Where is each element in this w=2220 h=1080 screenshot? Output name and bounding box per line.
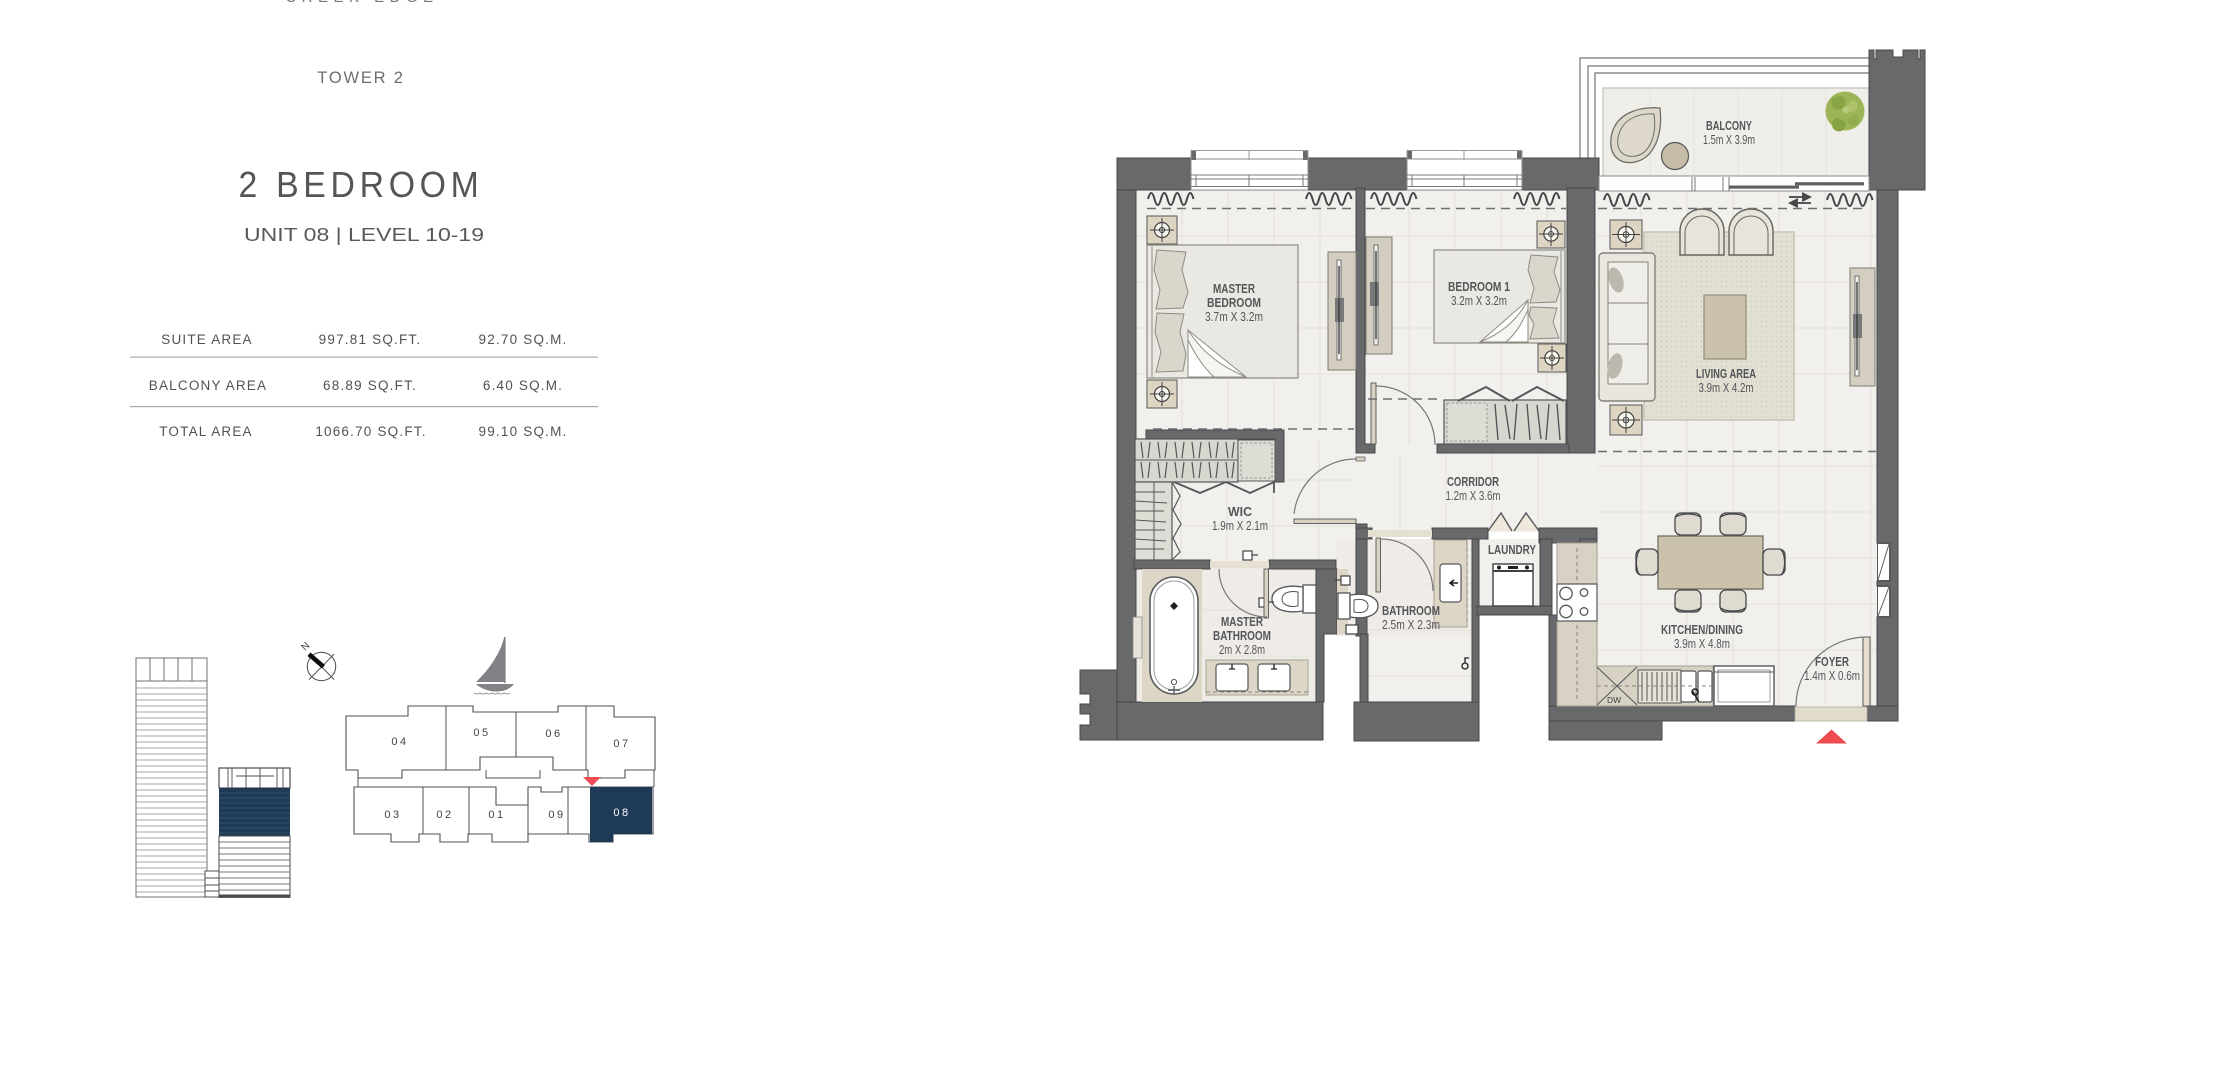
svg-text:1066.70 SQ.FT.: 1066.70 SQ.FT. bbox=[315, 424, 426, 439]
svg-text:03: 03 bbox=[384, 809, 401, 821]
svg-text:08: 08 bbox=[613, 807, 630, 819]
svg-text:SUITE AREA: SUITE AREA bbox=[161, 332, 253, 347]
svg-text:1.4m X 0.6m: 1.4m X 0.6m bbox=[1804, 669, 1860, 683]
svg-text:09: 09 bbox=[548, 809, 565, 821]
svg-text:BEDROOM 1: BEDROOM 1 bbox=[1448, 280, 1510, 294]
svg-text:06: 06 bbox=[545, 728, 562, 740]
svg-text:UNIT 08 | LEVEL 10-19: UNIT 08 | LEVEL 10-19 bbox=[244, 225, 484, 245]
svg-text:1.5m X 3.9m: 1.5m X 3.9m bbox=[1703, 133, 1755, 147]
svg-text:LIVING AREA: LIVING AREA bbox=[1696, 367, 1756, 381]
svg-text:3.2m X 3.2m: 3.2m X 3.2m bbox=[1451, 294, 1507, 308]
svg-text:2 BEDROOM: 2 BEDROOM bbox=[239, 164, 484, 205]
svg-text:2m X 2.8m: 2m X 2.8m bbox=[1219, 643, 1265, 657]
svg-text:04: 04 bbox=[391, 736, 408, 748]
svg-text:3.9m X 4.2m: 3.9m X 4.2m bbox=[1699, 381, 1754, 395]
svg-text:BATHROOM: BATHROOM bbox=[1382, 604, 1440, 618]
svg-text:LAUNDRY: LAUNDRY bbox=[1488, 543, 1537, 557]
svg-text:1.2m X 3.6m: 1.2m X 3.6m bbox=[1446, 489, 1501, 503]
svg-text:2.5m X 2.3m: 2.5m X 2.3m bbox=[1382, 618, 1440, 632]
svg-text:1.9m X 2.1m: 1.9m X 2.1m bbox=[1212, 519, 1268, 533]
svg-text:997.81 SQ.FT.: 997.81 SQ.FT. bbox=[319, 332, 422, 347]
svg-text:92.70 SQ.M.: 92.70 SQ.M. bbox=[479, 332, 568, 347]
svg-text:BEDROOM: BEDROOM bbox=[1207, 296, 1261, 310]
svg-text:01: 01 bbox=[488, 809, 505, 821]
svg-text:02: 02 bbox=[436, 809, 453, 821]
svg-text:05: 05 bbox=[473, 727, 490, 739]
svg-text:TOTAL AREA: TOTAL AREA bbox=[159, 424, 253, 439]
svg-text:TOWER 2: TOWER 2 bbox=[317, 69, 404, 87]
svg-text:99.10 SQ.M.: 99.10 SQ.M. bbox=[479, 424, 568, 439]
svg-text:BATHROOM: BATHROOM bbox=[1213, 629, 1271, 643]
svg-text:KITCHEN/DINING: KITCHEN/DINING bbox=[1661, 623, 1743, 637]
svg-text:MASTER: MASTER bbox=[1221, 615, 1263, 629]
svg-text:BALCONY AREA: BALCONY AREA bbox=[149, 378, 267, 393]
svg-text:CORRIDOR: CORRIDOR bbox=[1447, 475, 1499, 489]
svg-text:CREEK EDGE: CREEK EDGE bbox=[285, 0, 438, 6]
svg-text:MASTER: MASTER bbox=[1213, 282, 1255, 296]
svg-text:3.9m X 4.8m: 3.9m X 4.8m bbox=[1674, 637, 1730, 651]
svg-text:68.89 SQ.FT.: 68.89 SQ.FT. bbox=[323, 378, 417, 393]
svg-text:BALCONY: BALCONY bbox=[1706, 119, 1752, 133]
svg-text:WIC: WIC bbox=[1228, 505, 1252, 519]
svg-text:FOYER: FOYER bbox=[1815, 655, 1849, 669]
svg-text:3.7m X 3.2m: 3.7m X 3.2m bbox=[1205, 310, 1263, 324]
svg-text:07: 07 bbox=[613, 738, 630, 750]
svg-text:6.40 SQ.M.: 6.40 SQ.M. bbox=[483, 378, 563, 393]
svg-text:DW: DW bbox=[1607, 695, 1621, 705]
